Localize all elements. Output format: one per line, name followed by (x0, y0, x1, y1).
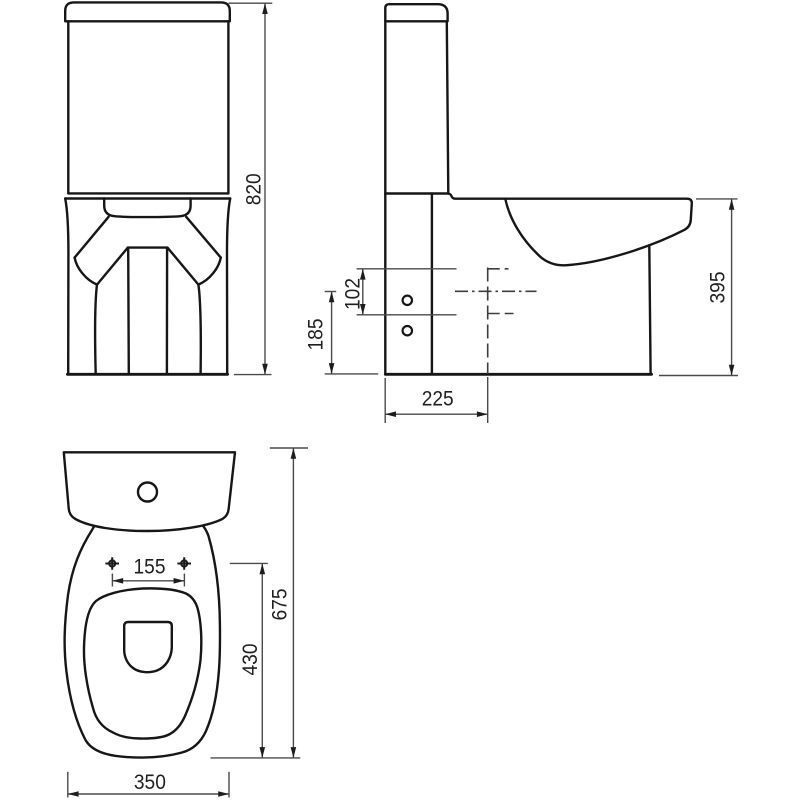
svg-text:430: 430 (239, 644, 262, 676)
svg-text:820: 820 (243, 173, 266, 205)
svg-text:675: 675 (268, 589, 291, 621)
svg-text:102: 102 (341, 278, 364, 310)
svg-text:185: 185 (305, 319, 328, 351)
svg-text:350: 350 (134, 771, 166, 794)
svg-text:225: 225 (422, 388, 454, 411)
svg-text:155: 155 (134, 556, 166, 579)
svg-text:395: 395 (706, 272, 729, 304)
